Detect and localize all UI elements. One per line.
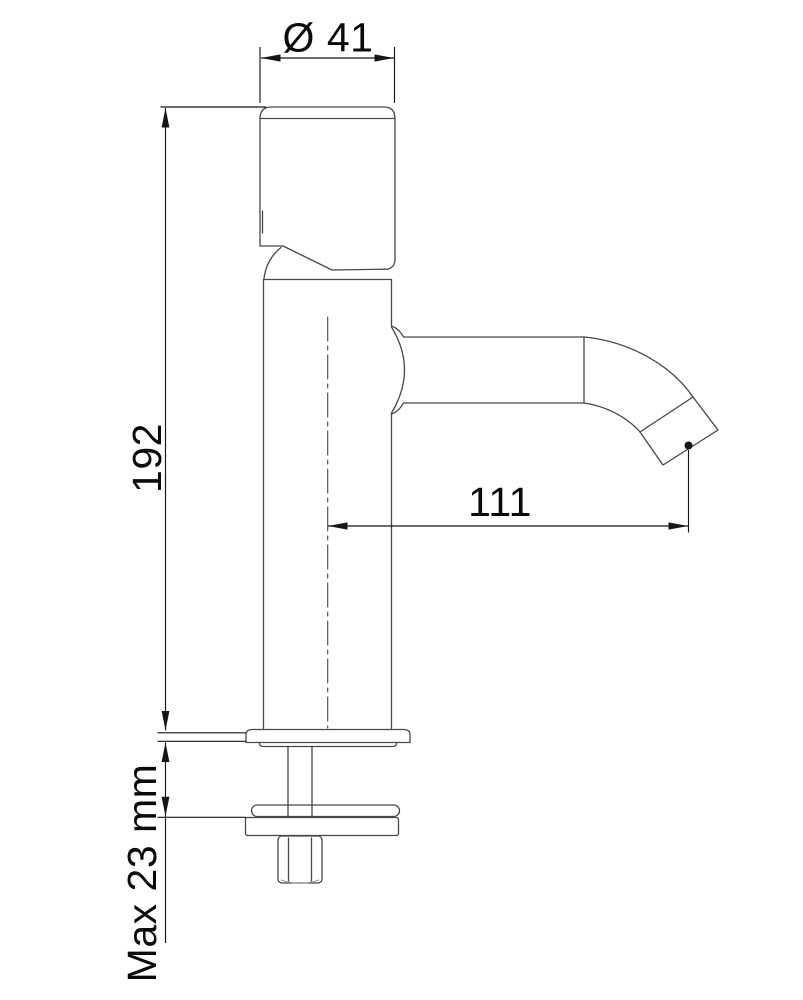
dimension-label-spout-reach: 111 xyxy=(468,479,532,525)
arrowhead-up xyxy=(162,108,170,128)
metal-washer xyxy=(246,818,399,836)
arrowhead-left xyxy=(261,54,281,61)
base-flange xyxy=(246,730,410,743)
arrowhead-up xyxy=(162,743,170,763)
lever-front-curve xyxy=(264,248,281,279)
hex-nut xyxy=(278,836,322,883)
aerator-tip xyxy=(640,397,718,465)
dimension-diameter: Ø 41 xyxy=(260,15,395,104)
spout-root-fillet-bottom xyxy=(392,403,404,414)
arrowhead-right xyxy=(669,522,689,529)
dimension-label-deck-thickness: Max 23 mm xyxy=(119,764,165,983)
handle-cap xyxy=(260,107,395,270)
spout-root-crescent xyxy=(392,327,405,413)
arrowhead-down xyxy=(162,711,170,731)
dimension-label-diameter: Ø 41 xyxy=(283,15,374,61)
spout-inner-bend xyxy=(584,403,640,432)
dimension-height: 192 xyxy=(124,107,266,741)
faucet-technical-drawing: Ø 41 192 111 Max 23 mm xyxy=(0,0,803,1000)
drawing-canvas: Ø 41 192 111 Max 23 mm xyxy=(0,0,803,1000)
dimension-label-height: 192 xyxy=(124,423,170,493)
arrowhead-left xyxy=(328,522,348,529)
spout-root-fillet-top xyxy=(392,326,404,337)
dimension-spout-reach: 111 xyxy=(328,442,693,533)
spout-outer-bend xyxy=(584,337,693,397)
rubber-washer xyxy=(252,805,400,817)
aerator-joint-line xyxy=(640,397,693,432)
spout-outlet-reference-dot xyxy=(685,442,693,450)
dimension-deck-thickness: Max 23 mm xyxy=(119,743,246,983)
arrowhead-right xyxy=(375,54,395,61)
